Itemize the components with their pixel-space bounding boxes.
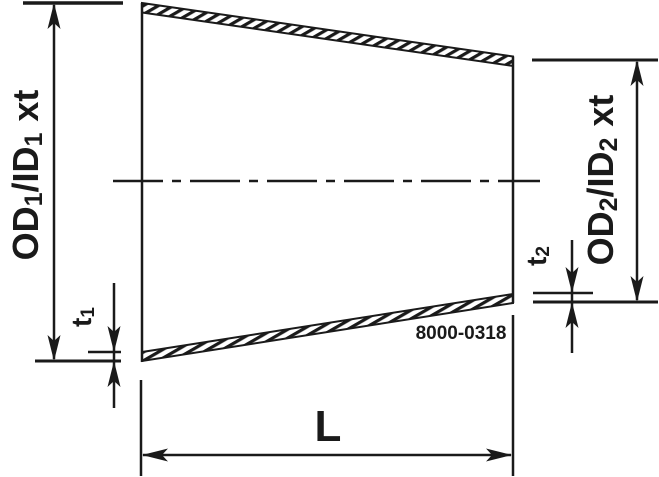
t1-label: t1 <box>66 307 99 327</box>
od2-label: OD2/ID2xt <box>580 95 624 266</box>
reducer-top-wall <box>142 3 513 66</box>
technical-drawing-canvas: OD1/ID1xt t1 OD2/ID2xt t2 <box>0 0 659 477</box>
t1-dimension <box>88 283 121 408</box>
length-label: L <box>315 402 342 451</box>
part-number: 8000-0318 <box>416 323 507 344</box>
reducer-drawing: OD1/ID1xt t1 OD2/ID2xt t2 <box>0 0 659 477</box>
od1-label: OD1/ID1xt <box>5 90 49 261</box>
t2-label: t2 <box>521 246 554 266</box>
